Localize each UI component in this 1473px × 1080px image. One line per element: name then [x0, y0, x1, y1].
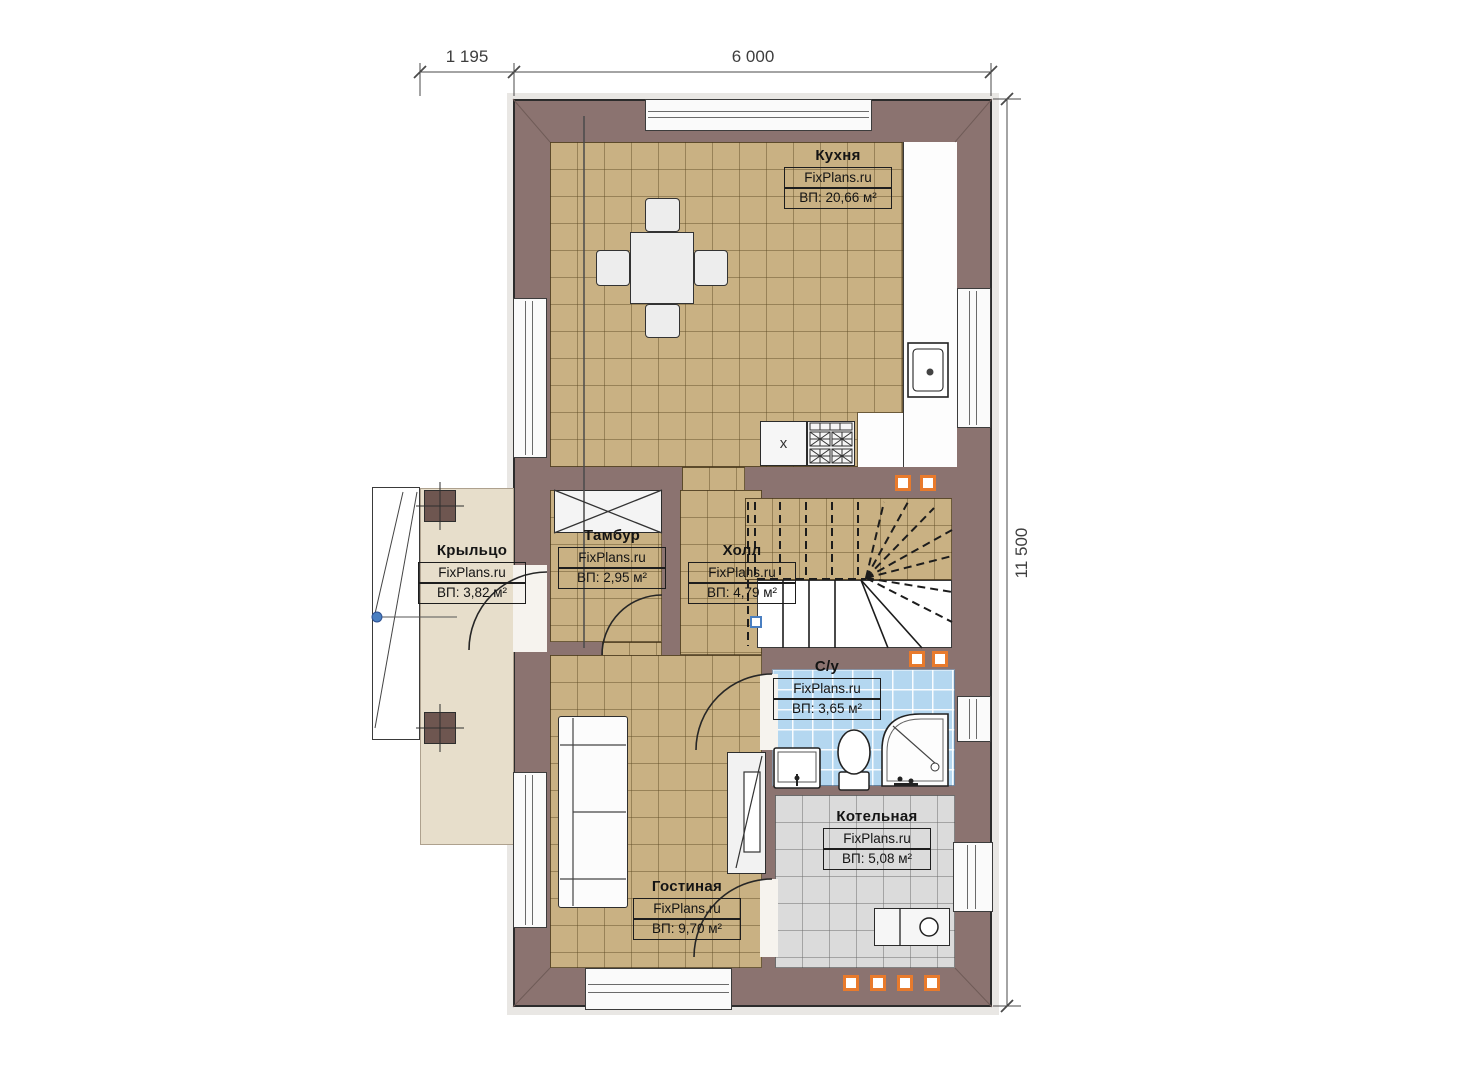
porch-column-bottom [424, 712, 456, 744]
watermark-text: FixPlans.ru [793, 681, 861, 696]
area-box: ВП: 20,66 м² [784, 187, 892, 209]
area-text: ВП: 3,65 м² [792, 701, 862, 716]
watermark-box: FixPlans.ru [558, 547, 666, 569]
watermark-text: FixPlans.ru [708, 565, 776, 580]
vent-block [924, 975, 940, 991]
watermark-box: FixPlans.ru [784, 167, 892, 189]
boiler-right-window [953, 842, 993, 912]
room-label-tambour: Тамбур FixPlans.ru ВП: 2,95 м² [558, 527, 666, 589]
kitchen-top-window [645, 99, 872, 131]
watermark-box: FixPlans.ru [688, 562, 796, 584]
boiler-door-opening [760, 879, 778, 957]
vent-block [932, 651, 948, 667]
room-label-hall: Холл FixPlans.ru ВП: 4,79 м² [688, 542, 796, 604]
kitchen-cabinet-label: x [780, 435, 788, 452]
boiler-unit [874, 908, 950, 946]
room-name: С/у [773, 658, 881, 675]
area-box: ВП: 2,95 м² [558, 567, 666, 589]
sofa [558, 716, 628, 908]
area-box: ВП: 3,82 м² [418, 582, 526, 604]
room-name: Холл [688, 542, 796, 559]
kitchen-table [630, 232, 694, 304]
area-box: ВП: 3,65 м² [773, 698, 881, 720]
room-label-living: Гостиная FixPlans.ru ВП: 9,70 м² [633, 878, 741, 940]
kitchen-counter [903, 142, 957, 467]
porch-column-top [424, 490, 456, 522]
watermark-text: FixPlans.ru [578, 550, 646, 565]
vent-block [897, 975, 913, 991]
chair-left [596, 250, 630, 286]
area-text: ВП: 2,95 м² [577, 570, 647, 585]
dimension-building-width: 6 000 [732, 47, 775, 67]
watermark-text: FixPlans.ru [843, 831, 911, 846]
vent-block [920, 475, 936, 491]
tv-stand [727, 752, 766, 874]
floor-plan-canvas: x [0, 0, 1473, 1080]
room-label-kitchen: Кухня FixPlans.ru ВП: 20,66 м² [784, 147, 892, 209]
room-name: Крыльцо [418, 542, 526, 559]
chair-top [645, 198, 680, 232]
area-text: ВП: 9,70 м² [652, 921, 722, 936]
room-name: Кухня [784, 147, 892, 164]
watermark-box: FixPlans.ru [418, 562, 526, 584]
area-text: ВП: 4,79 м² [707, 585, 777, 600]
area-text: ВП: 20,66 м² [799, 190, 877, 205]
watermark-text: FixPlans.ru [653, 901, 721, 916]
porch-steps [372, 487, 420, 740]
chair-bottom [645, 304, 680, 338]
watermark-box: FixPlans.ru [773, 678, 881, 700]
living-left-window [513, 772, 547, 928]
area-text: ВП: 3,82 м² [437, 585, 507, 600]
kitchen-counter-corner [858, 413, 903, 467]
chair-right [694, 250, 728, 286]
dimension-building-height: 11 500 [1012, 528, 1032, 579]
dimension-porch-width: 1 195 [446, 47, 489, 67]
area-box: ВП: 9,70 м² [633, 918, 741, 940]
kitchen-right-window [957, 288, 991, 428]
area-box: ВП: 4,79 м² [688, 582, 796, 604]
room-label-porch: Крыльцо FixPlans.ru ВП: 3,82 м² [418, 542, 526, 604]
vent-block [909, 651, 925, 667]
watermark-box: FixPlans.ru [823, 828, 931, 850]
kitchen-cabinet: x [760, 421, 807, 466]
room-label-boiler: Котельная FixPlans.ru ВП: 5,08 м² [823, 808, 931, 870]
room-label-bathroom: С/у FixPlans.ru ВП: 3,65 м² [773, 658, 881, 720]
area-text: ВП: 5,08 м² [842, 851, 912, 866]
kitchen-stove [807, 421, 855, 466]
watermark-box: FixPlans.ru [633, 898, 741, 920]
vent-block [895, 475, 911, 491]
living-bottom-window [585, 968, 732, 1010]
room-name: Тамбур [558, 527, 666, 544]
room-name: Котельная [823, 808, 931, 825]
area-box: ВП: 5,08 м² [823, 848, 931, 870]
room-name: Гостиная [633, 878, 741, 895]
bathroom-right-window [957, 696, 991, 742]
vent-block [843, 975, 859, 991]
watermark-text: FixPlans.ru [804, 170, 872, 185]
vent-block [870, 975, 886, 991]
kitchen-left-window [513, 298, 547, 458]
watermark-text: FixPlans.ru [438, 565, 506, 580]
